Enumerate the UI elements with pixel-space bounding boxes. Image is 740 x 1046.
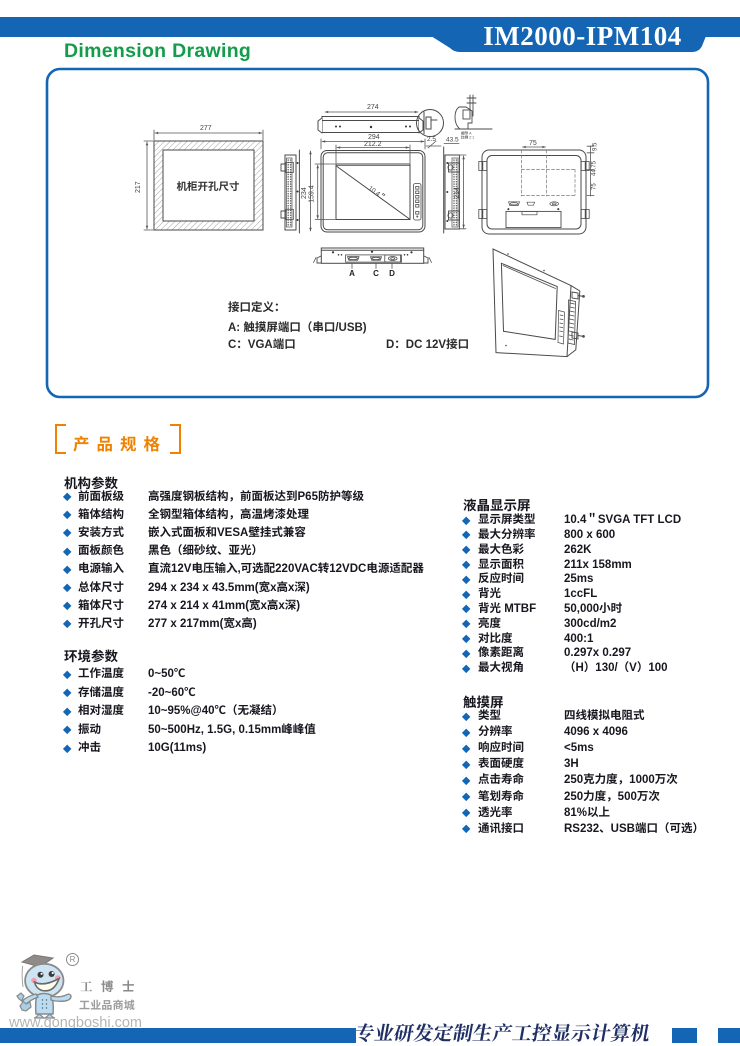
svg-text:2.5: 2.5 xyxy=(427,136,436,143)
svg-text:214: 214 xyxy=(454,187,461,199)
svg-text:75: 75 xyxy=(529,140,537,147)
svg-text:D: D xyxy=(389,269,395,278)
svg-text:277: 277 xyxy=(200,125,212,132)
svg-text:234: 234 xyxy=(301,187,308,199)
svg-text:212.2: 212.2 xyxy=(364,141,382,148)
svg-text:比例 2:1: 比例 2:1 xyxy=(461,135,474,140)
svg-text:10.4＂: 10.4＂ xyxy=(367,184,387,202)
svg-text:159.4: 159.4 xyxy=(308,185,315,203)
svg-text:44.75: 44.75 xyxy=(592,160,598,176)
svg-text:机柜开孔尺寸: 机柜开孔尺寸 xyxy=(177,181,240,193)
svg-text:A: A xyxy=(349,269,355,278)
svg-text:43.5: 43.5 xyxy=(446,137,459,144)
svg-text:217: 217 xyxy=(135,181,142,193)
svg-text:75: 75 xyxy=(592,183,598,190)
svg-text:274: 274 xyxy=(367,104,379,111)
svg-text:9.5: 9.5 xyxy=(593,142,599,151)
svg-text:C: C xyxy=(373,269,379,278)
